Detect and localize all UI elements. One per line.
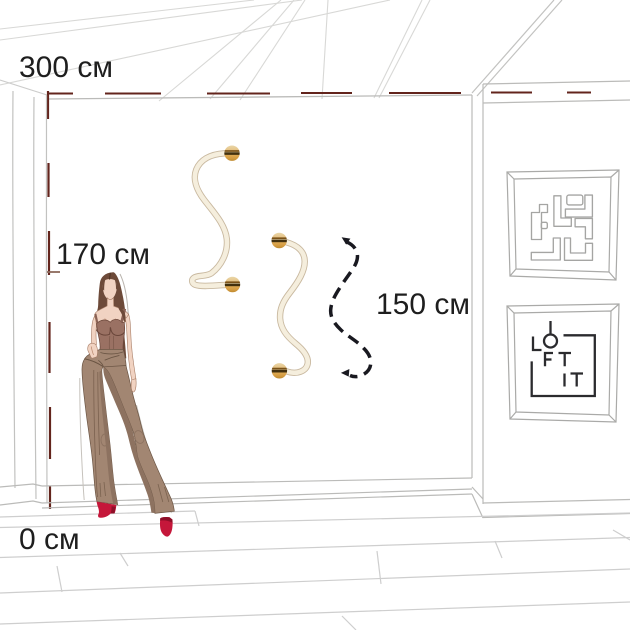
svg-text:0 см: 0 см bbox=[19, 523, 80, 556]
svg-text:150 см: 150 см bbox=[376, 288, 470, 321]
svg-text:300 см: 300 см bbox=[19, 51, 113, 84]
svg-text:170 см: 170 см bbox=[56, 238, 150, 271]
